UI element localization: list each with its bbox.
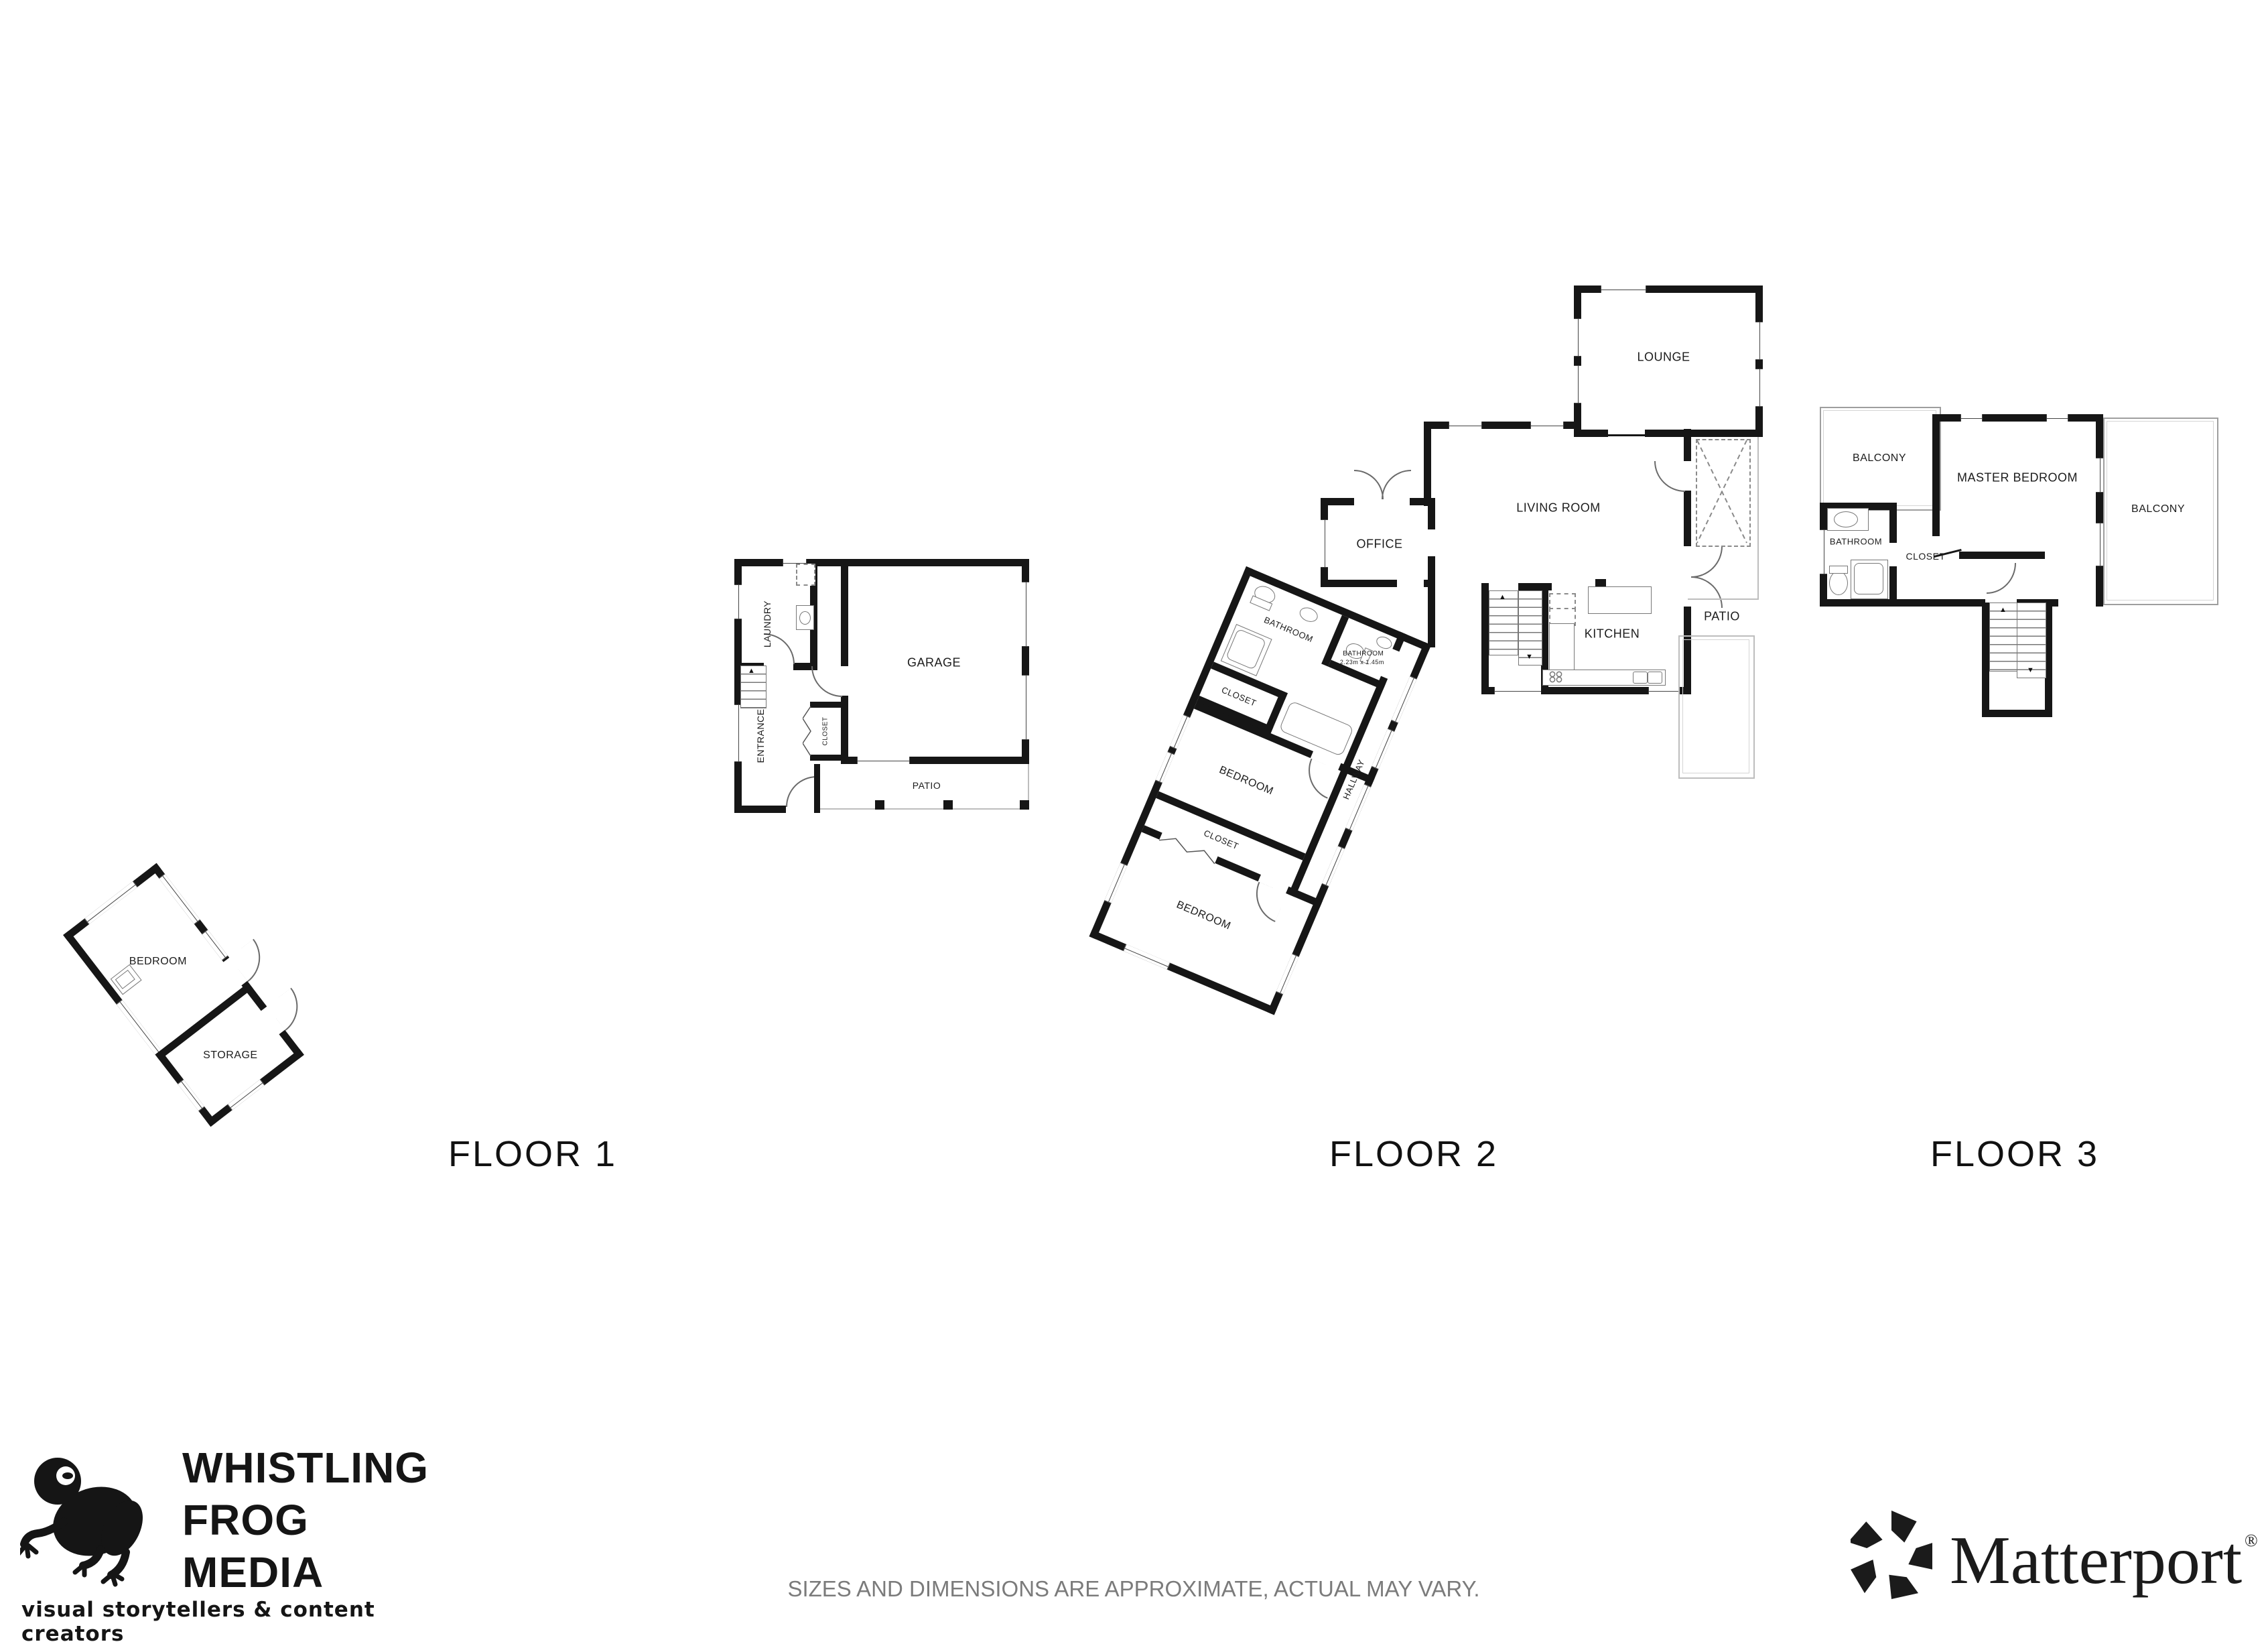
matterport-wordmark: Matterport xyxy=(1950,1527,2242,1595)
window xyxy=(2096,458,2103,493)
floor3-label: FLOOR 3 xyxy=(1930,1133,2099,1175)
floor3-plan: BALCONY BATHROOM MASTER BEDROOM CLOSET B… xyxy=(0,0,2268,1619)
window xyxy=(2046,414,2068,422)
wall-segment xyxy=(2096,414,2103,607)
room-label-balcony-left: BALCONY xyxy=(1853,452,1906,464)
window xyxy=(1820,529,1827,574)
whistling-frog-logo: WHISTLING FROG MEDIA visual storytellers… xyxy=(20,1434,462,1619)
brand-line1: WHISTLING xyxy=(182,1446,429,1489)
wall-segment xyxy=(1982,710,2052,717)
room-label-balcony-right: BALCONY xyxy=(2131,503,2185,515)
matterport-icon xyxy=(1851,1507,1932,1606)
wall-segment xyxy=(1932,414,1940,536)
brand-line2: FROG xyxy=(182,1499,309,1541)
door-arc xyxy=(1987,563,2016,594)
disclaimer-text: SIZES AND DIMENSIONS ARE APPROXIMATE, AC… xyxy=(787,1576,1479,1602)
stairs-up-arrow-icon: ▲ xyxy=(1999,607,2007,614)
room-label-master-bedroom: MASTER BEDROOM xyxy=(1957,471,2078,485)
brand-tagline: visual storytellers & content creators xyxy=(21,1598,462,1646)
wall-segment xyxy=(1889,566,1897,607)
toilet xyxy=(1829,571,1848,595)
window xyxy=(1960,414,1983,422)
shower xyxy=(1851,560,1888,599)
wall-segment xyxy=(1889,503,1897,543)
wall-segment xyxy=(1982,603,1989,717)
stairs-down-arrow-icon: ▼ xyxy=(2027,667,2034,674)
window xyxy=(2096,523,2103,566)
wall-segment xyxy=(1932,414,2103,422)
room-label-closet: CLOSET xyxy=(1906,551,1945,562)
brand-line3: MEDIA xyxy=(182,1551,324,1594)
registered-mark-icon: ® xyxy=(2245,1531,2258,1551)
matterport-logo: Matterport ® xyxy=(1851,1507,2266,1614)
toilet-tank xyxy=(1829,566,1848,574)
wall-segment xyxy=(1959,552,2045,559)
room-label-bathroom: BATHROOM xyxy=(1830,537,1882,547)
sink xyxy=(1834,511,1858,527)
frog-icon xyxy=(20,1441,168,1592)
